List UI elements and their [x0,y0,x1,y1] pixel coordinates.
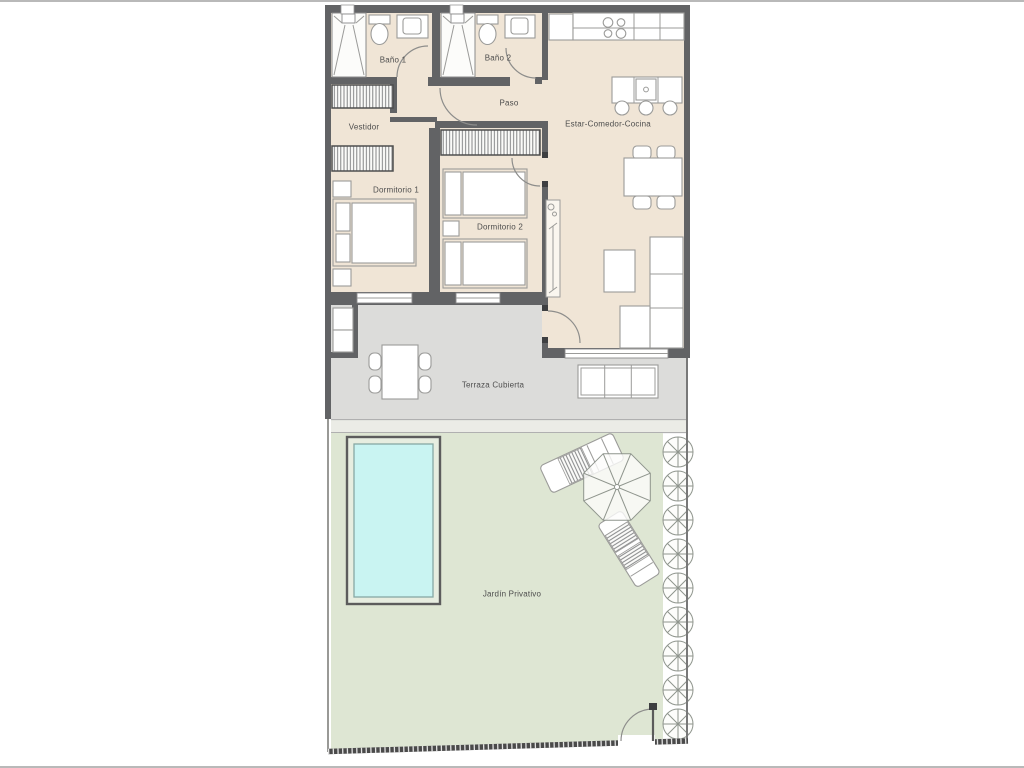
right-boundary-line [686,358,688,741]
room-label-terraza: Terraza Cubierta [462,381,524,390]
left-boundary-line [327,419,329,752]
kitchen-counter [549,13,684,40]
vestidor-wardrobe-top [332,85,393,108]
parasol-umbrella [584,454,651,521]
bathroom1-toilet [369,15,390,45]
vestidor-wardrobe-bottom [332,146,393,171]
pool-water [354,444,433,597]
garden-trees [663,437,693,739]
swimming-pool [347,437,440,604]
room-label-paso: Paso [499,99,518,108]
room-label-jardin: Jardín Privativo [483,590,541,599]
bathroom1-shower [332,5,366,77]
room-label-bano2: Baño 2 [485,54,512,63]
terrace-garden-step [331,419,686,433]
terrace-bench [578,365,658,398]
room-label-bano1: Baño 1 [380,56,407,65]
floorplan-page: Baño 1 Baño 2 Paso Vestidor Dormitorio 1… [0,0,1024,768]
kitchen-island [612,77,682,115]
bathroom1-sink [397,15,428,38]
window-dormitorio2 [456,293,500,303]
room-label-vestidor: Vestidor [349,123,380,132]
coffee-table [604,250,635,292]
room-label-dormitorio2: Dormitorio 2 [477,223,523,232]
terrace-storage [333,308,353,352]
room-label-dormitorio1: Dormitorio 1 [373,186,419,195]
dormitorio2-wardrobe [441,130,540,155]
room-label-estar: Estar-Comedor-Cocina [565,120,651,129]
utility-rack [546,200,560,297]
window-living-terrace [565,349,668,358]
bathroom2-sink [505,15,535,38]
bathroom2-shower [441,5,475,77]
window-dormitorio1 [357,293,412,303]
bathroom2-toilet [477,15,498,45]
